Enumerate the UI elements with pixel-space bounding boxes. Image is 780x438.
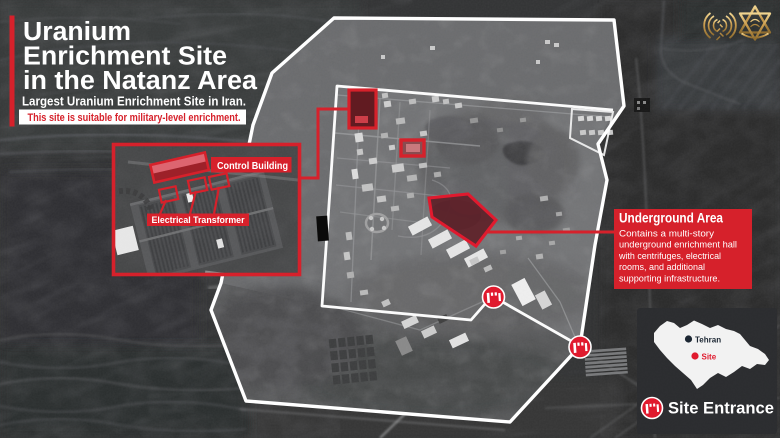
svg-text:Site: Site <box>702 353 717 362</box>
svg-text:in the Natanz Area: in the Natanz Area <box>23 67 258 95</box>
svg-text:rooms, and additional: rooms, and additional <box>619 262 705 273</box>
svg-text:Site Entrance: Site Entrance <box>668 400 774 418</box>
svg-text:supporting infrastructure.: supporting infrastructure. <box>619 273 720 284</box>
svg-text:Underground Area: Underground Area <box>619 210 723 226</box>
svg-text:Electrical Transformer: Electrical Transformer <box>152 215 245 226</box>
svg-text:Largest Uranium Enrichment Sit: Largest Uranium Enrichment Site in Iran. <box>22 95 246 109</box>
svg-text:Tehran: Tehran <box>695 336 721 345</box>
svg-text:underground enrichment hall: underground enrichment hall <box>619 240 737 251</box>
svg-text:with centrifuges, electrical: with centrifuges, electrical <box>618 251 721 262</box>
svg-text:Contains a multi-story: Contains a multi-story <box>619 229 714 240</box>
svg-text:Control Building: Control Building <box>217 161 288 172</box>
svg-text:This site is suitable for mili: This site is suitable for military-level… <box>28 112 241 124</box>
